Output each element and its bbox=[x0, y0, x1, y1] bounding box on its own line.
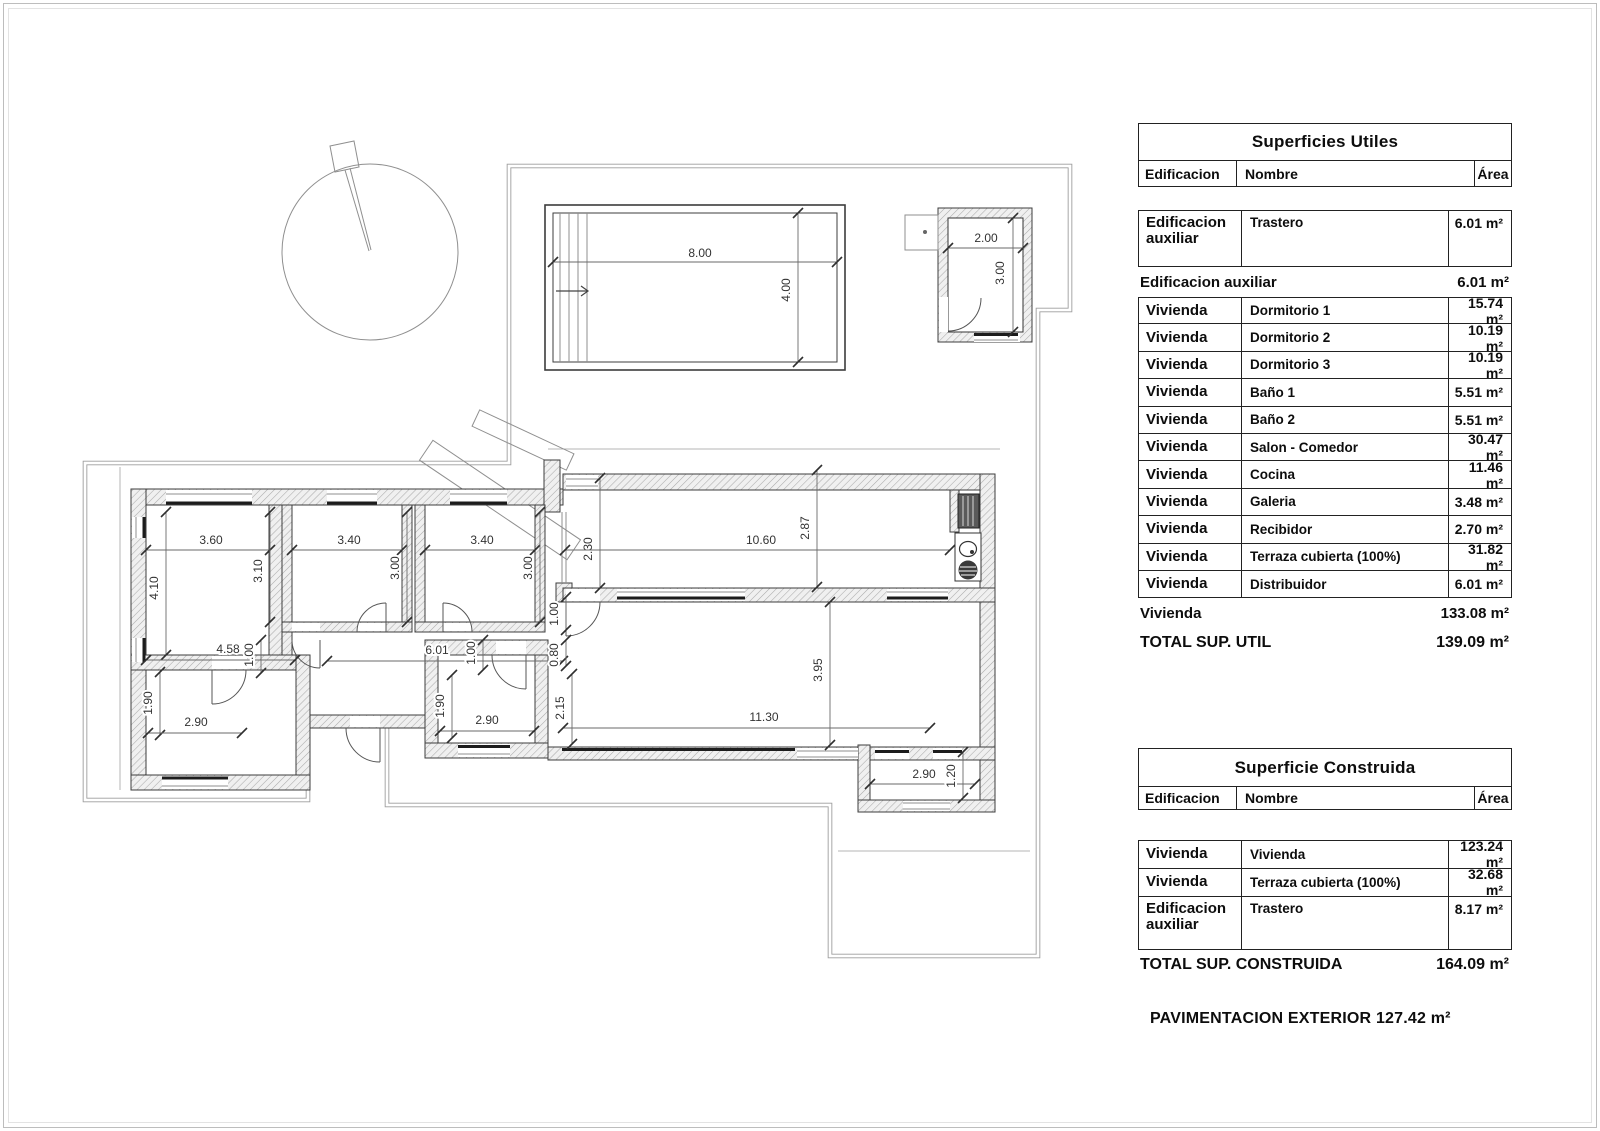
cell-edificacion: Edificacion auxiliar bbox=[1139, 211, 1242, 266]
cell-area: 6.01 m² bbox=[1449, 211, 1511, 231]
table-superficie-construida: ViviendaVivienda123.24 m²ViviendaTerraza… bbox=[1138, 840, 1512, 980]
cell-nombre: Distribuidor bbox=[1242, 571, 1449, 597]
col-header-edificacion: Edificacion bbox=[1139, 787, 1237, 809]
cell-nombre: Terraza cubierta (100%) bbox=[1242, 869, 1449, 897]
cell-area: 32.68 m² bbox=[1449, 866, 1511, 898]
table-row: Edificacion auxiliarTrastero6.01 m² bbox=[1138, 210, 1512, 267]
cell-nombre: Trastero bbox=[1242, 897, 1449, 949]
table-row: ViviendaBaño 25.51 m² bbox=[1138, 407, 1512, 434]
cell-nombre: Dormitorio 2 bbox=[1242, 324, 1449, 350]
dimension-label: 1.90 bbox=[141, 691, 155, 715]
dimension-label: 2.90 bbox=[184, 715, 208, 729]
col-header-nombre: Nombre bbox=[1237, 787, 1475, 809]
dimension-label: 8.00 bbox=[688, 246, 712, 260]
dimension-label: 2.00 bbox=[974, 231, 998, 245]
dimension-label: 1.90 bbox=[433, 694, 447, 718]
dimension-label: 1.00 bbox=[547, 602, 561, 626]
cell-edificacion: Vivienda bbox=[1139, 544, 1242, 570]
wall-top-right bbox=[563, 474, 995, 490]
cell-edificacion: Vivienda bbox=[1139, 489, 1242, 515]
table-title: Superficie Construida bbox=[1139, 749, 1511, 787]
cell-edificacion: Vivienda bbox=[1139, 869, 1242, 897]
cell-edificacion: Vivienda bbox=[1139, 298, 1242, 323]
table-title: Superficies Utiles bbox=[1139, 124, 1511, 161]
cell-nombre: Salon - Comedor bbox=[1242, 434, 1449, 460]
kitchen-fixtures bbox=[955, 494, 981, 581]
table-row: ViviendaCocina11.46 m² bbox=[1138, 461, 1512, 488]
dimension-label: 2.90 bbox=[912, 767, 936, 781]
cell-area: 3.48 m² bbox=[1449, 494, 1511, 510]
cell-area: 31.82 m² bbox=[1449, 541, 1511, 573]
dimension-label: 3.60 bbox=[199, 533, 223, 547]
door-arc bbox=[346, 728, 380, 762]
cell-area: 5.51 m² bbox=[1449, 384, 1511, 400]
table-row: Edificacion auxiliarTrastero8.17 m² bbox=[1138, 897, 1512, 950]
cell-nombre: Terraza cubierta (100%) bbox=[1242, 544, 1449, 570]
cell-edificacion: Edificacion auxiliar bbox=[1139, 897, 1242, 949]
col-header-nombre: Nombre bbox=[1237, 161, 1475, 186]
dimension-label: 10.60 bbox=[746, 533, 776, 547]
plan-sheet: 8.004.002.003.003.604.103.103.403.003.40… bbox=[0, 0, 1600, 1131]
table-row: ViviendaDistribuidor6.01 m² bbox=[1138, 571, 1512, 598]
table-row: ViviendaDormitorio 115.74 m² bbox=[1138, 297, 1512, 324]
cell-nombre: Recibidor bbox=[1242, 516, 1449, 542]
dimension-label: 4.10 bbox=[147, 576, 161, 600]
dimension-label: 11.30 bbox=[749, 710, 778, 724]
cell-edificacion: Vivienda bbox=[1139, 461, 1242, 487]
table-utiles-header: Superficies Utiles Edificacion Nombre Ár… bbox=[1138, 123, 1512, 187]
house bbox=[131, 460, 995, 812]
dimension-label: 2.90 bbox=[475, 713, 499, 727]
cell-area: 8.17 m² bbox=[1449, 897, 1511, 917]
col-header-edificacion: Edificacion bbox=[1139, 161, 1237, 186]
cell-area: 6.01 m² bbox=[1449, 576, 1511, 592]
dimension-label: 1.00 bbox=[242, 643, 256, 667]
cell-nombre: Trastero bbox=[1242, 211, 1449, 266]
table-row: ViviendaTerraza cubierta (100%)32.68 m² bbox=[1138, 869, 1512, 898]
dimension-label: 3.00 bbox=[993, 261, 1007, 285]
table-row: ViviendaRecibidor2.70 m² bbox=[1138, 516, 1512, 543]
cell-nombre: Baño 1 bbox=[1242, 379, 1449, 405]
row-area: 164.09 m² bbox=[1436, 956, 1512, 974]
sink-icon bbox=[960, 542, 977, 557]
cell-edificacion: Vivienda bbox=[1139, 352, 1242, 378]
table-construida-header: Superficie Construida Edificacion Nombre… bbox=[1138, 748, 1512, 810]
dimension-label: 1.00 bbox=[464, 641, 478, 665]
cell-area: 10.19 m² bbox=[1449, 349, 1511, 381]
row-area: 133.08 m² bbox=[1441, 605, 1512, 622]
col-header-area: Área bbox=[1475, 790, 1511, 806]
subtotal-row: Vivienda133.08 m² bbox=[1138, 598, 1512, 628]
equipment-box bbox=[905, 215, 938, 250]
row-label: TOTAL SUP. UTIL bbox=[1140, 634, 1271, 652]
row-area: 6.01 m² bbox=[1457, 274, 1512, 291]
door-arc bbox=[492, 655, 526, 689]
row-label: Edificacion auxiliar bbox=[1140, 274, 1277, 291]
cell-edificacion: Vivienda bbox=[1139, 407, 1242, 433]
cell-area: 2.70 m² bbox=[1449, 521, 1511, 537]
dimension-label: 3.95 bbox=[811, 658, 825, 682]
dimension-label: 6.01 bbox=[425, 643, 449, 657]
row-label: TOTAL SUP. CONSTRUIDA bbox=[1140, 956, 1342, 974]
dimension-label: 3.40 bbox=[337, 533, 361, 547]
cell-edificacion: Vivienda bbox=[1139, 324, 1242, 350]
dimension-label: 3.10 bbox=[251, 559, 265, 583]
cell-area: 5.51 m² bbox=[1449, 412, 1511, 428]
cell-nombre: Dormitorio 3 bbox=[1242, 352, 1449, 378]
col-header-area: Área bbox=[1475, 166, 1511, 182]
dimension-label: 2.87 bbox=[798, 516, 812, 540]
dimension-label: 2.15 bbox=[553, 696, 567, 720]
cell-nombre: Galeria bbox=[1242, 489, 1449, 515]
door-arc bbox=[566, 602, 600, 636]
dimension-label: 4.00 bbox=[779, 278, 793, 302]
pool bbox=[545, 205, 845, 370]
cell-edificacion: Vivienda bbox=[1139, 841, 1242, 868]
cell-edificacion: Vivienda bbox=[1139, 434, 1242, 460]
row-label: Vivienda bbox=[1140, 605, 1201, 622]
table-superficies-utiles: Edificacion auxiliarTrastero6.01 m²Edifi… bbox=[1138, 210, 1512, 658]
row-area: 139.09 m² bbox=[1436, 634, 1512, 652]
table-row: ViviendaSalon - Comedor30.47 m² bbox=[1138, 434, 1512, 461]
table-row: ViviendaVivienda123.24 m² bbox=[1138, 840, 1512, 869]
cell-edificacion: Vivienda bbox=[1139, 516, 1242, 542]
cell-area: 11.46 m² bbox=[1449, 459, 1511, 491]
table-row: ViviendaDormitorio 310.19 m² bbox=[1138, 352, 1512, 379]
dimension-label: 0.80 bbox=[547, 643, 561, 667]
dimension-label: 1.20 bbox=[944, 764, 958, 788]
cell-nombre: Vivienda bbox=[1242, 841, 1449, 868]
table-row: ViviendaGaleria3.48 m² bbox=[1138, 489, 1512, 516]
dimension-label: 2.30 bbox=[581, 537, 595, 561]
table-row: ViviendaBaño 15.51 m² bbox=[1138, 379, 1512, 406]
cell-edificacion: Vivienda bbox=[1139, 571, 1242, 597]
door-arc bbox=[212, 670, 246, 704]
dimension-label: 3.40 bbox=[470, 533, 494, 547]
table-row: ViviendaTerraza cubierta (100%)31.82 m² bbox=[1138, 544, 1512, 571]
dimension-label: 3.00 bbox=[388, 556, 402, 580]
cell-nombre: Dormitorio 1 bbox=[1242, 298, 1449, 323]
total-row: TOTAL SUP. CONSTRUIDA164.09 m² bbox=[1138, 950, 1512, 980]
subtotal-row: Edificacion auxiliar6.01 m² bbox=[1138, 267, 1512, 297]
burner-icon bbox=[959, 561, 978, 580]
dimension-label: 3.00 bbox=[521, 556, 535, 580]
dimension-label: 4.58 bbox=[216, 642, 240, 656]
wall-right bbox=[980, 474, 995, 812]
pavimentacion-note: PAVIMENTACION EXTERIOR 127.42 m² bbox=[1150, 1010, 1451, 1028]
total-row: TOTAL SUP. UTIL139.09 m² bbox=[1138, 628, 1512, 658]
table-row: ViviendaDormitorio 210.19 m² bbox=[1138, 324, 1512, 351]
cell-nombre: Baño 2 bbox=[1242, 407, 1449, 433]
cell-nombre: Cocina bbox=[1242, 461, 1449, 487]
cell-edificacion: Vivienda bbox=[1139, 379, 1242, 405]
